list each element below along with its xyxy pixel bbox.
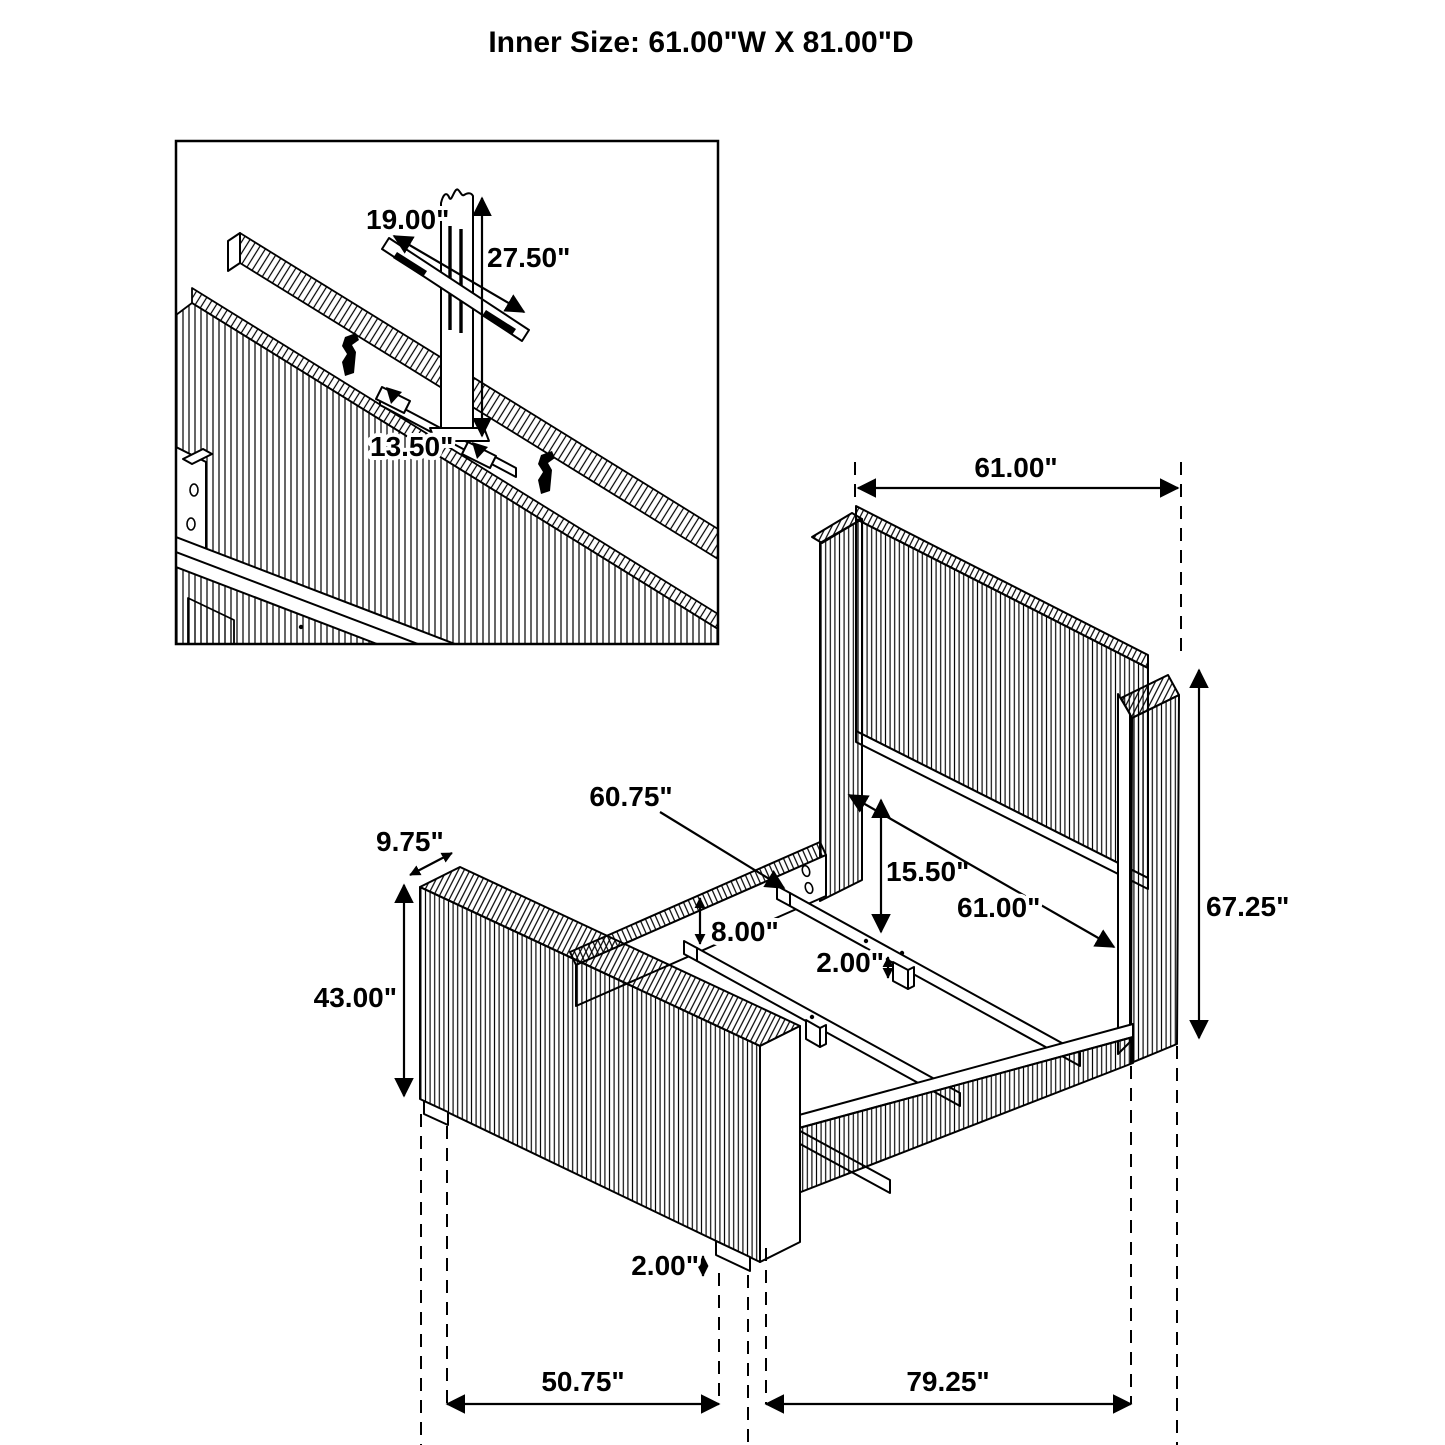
screw-dot	[864, 939, 868, 943]
dim-bracket-length: 13.50"	[370, 431, 453, 462]
right-side-rail	[788, 1024, 1133, 1197]
headboard-right-post	[1131, 695, 1179, 1063]
headboard	[812, 506, 1179, 1063]
dim-slat-leg-height: 2.00"	[816, 947, 884, 978]
dim-footboard-depth: 9.75"	[376, 826, 444, 857]
dim-slat-length: 60.75"	[589, 781, 672, 812]
dim-headboard-width: 61.00"	[974, 452, 1057, 483]
dim-footboard-height: 43.00"	[314, 982, 397, 1013]
dim-footboard-leg-height: 2.00"	[631, 1250, 699, 1281]
right-rail-face	[788, 1037, 1133, 1197]
screw-dot	[810, 1015, 814, 1019]
dim-headboard-height: 67.25"	[1206, 891, 1289, 922]
screw-dot	[299, 625, 303, 629]
dim-bracket-width: 19.00"	[366, 204, 449, 235]
leader-slat-length	[660, 812, 784, 888]
page-title: Inner Size: 61.00"W X 81.00"D	[488, 26, 913, 59]
dim-inner-width: 61.00"	[957, 892, 1040, 923]
inset-back-rail-end	[228, 233, 240, 271]
slat-leg-side	[908, 967, 914, 989]
dim-footboard-inner-span: 50.75"	[541, 1366, 624, 1397]
leg-bolt-hole	[190, 484, 198, 496]
tv-mount-detail-inset: 19.00" 27.50" 13.50"	[176, 141, 718, 644]
headboard-right-post-inner	[1118, 694, 1130, 1054]
dim-panel-clearance: 15.50"	[886, 856, 969, 887]
dim-rail-drop: 8.00"	[711, 916, 779, 947]
headboard-left-post	[820, 519, 862, 901]
leg-bolt-hole	[187, 518, 195, 530]
bed-dimension-diagram: Inner Size: 61.00"W X 81.00"D	[0, 0, 1445, 1445]
footboard-end-face	[760, 1026, 800, 1262]
bed-dimension-diagram-page: Inner Size: 61.00"W X 81.00"D	[0, 0, 1445, 1445]
dim-mount-height: 27.50"	[487, 242, 570, 273]
screw-dot	[900, 951, 904, 955]
slat-leg-side	[820, 1025, 826, 1047]
dim-rail-span: 79.25"	[906, 1366, 989, 1397]
